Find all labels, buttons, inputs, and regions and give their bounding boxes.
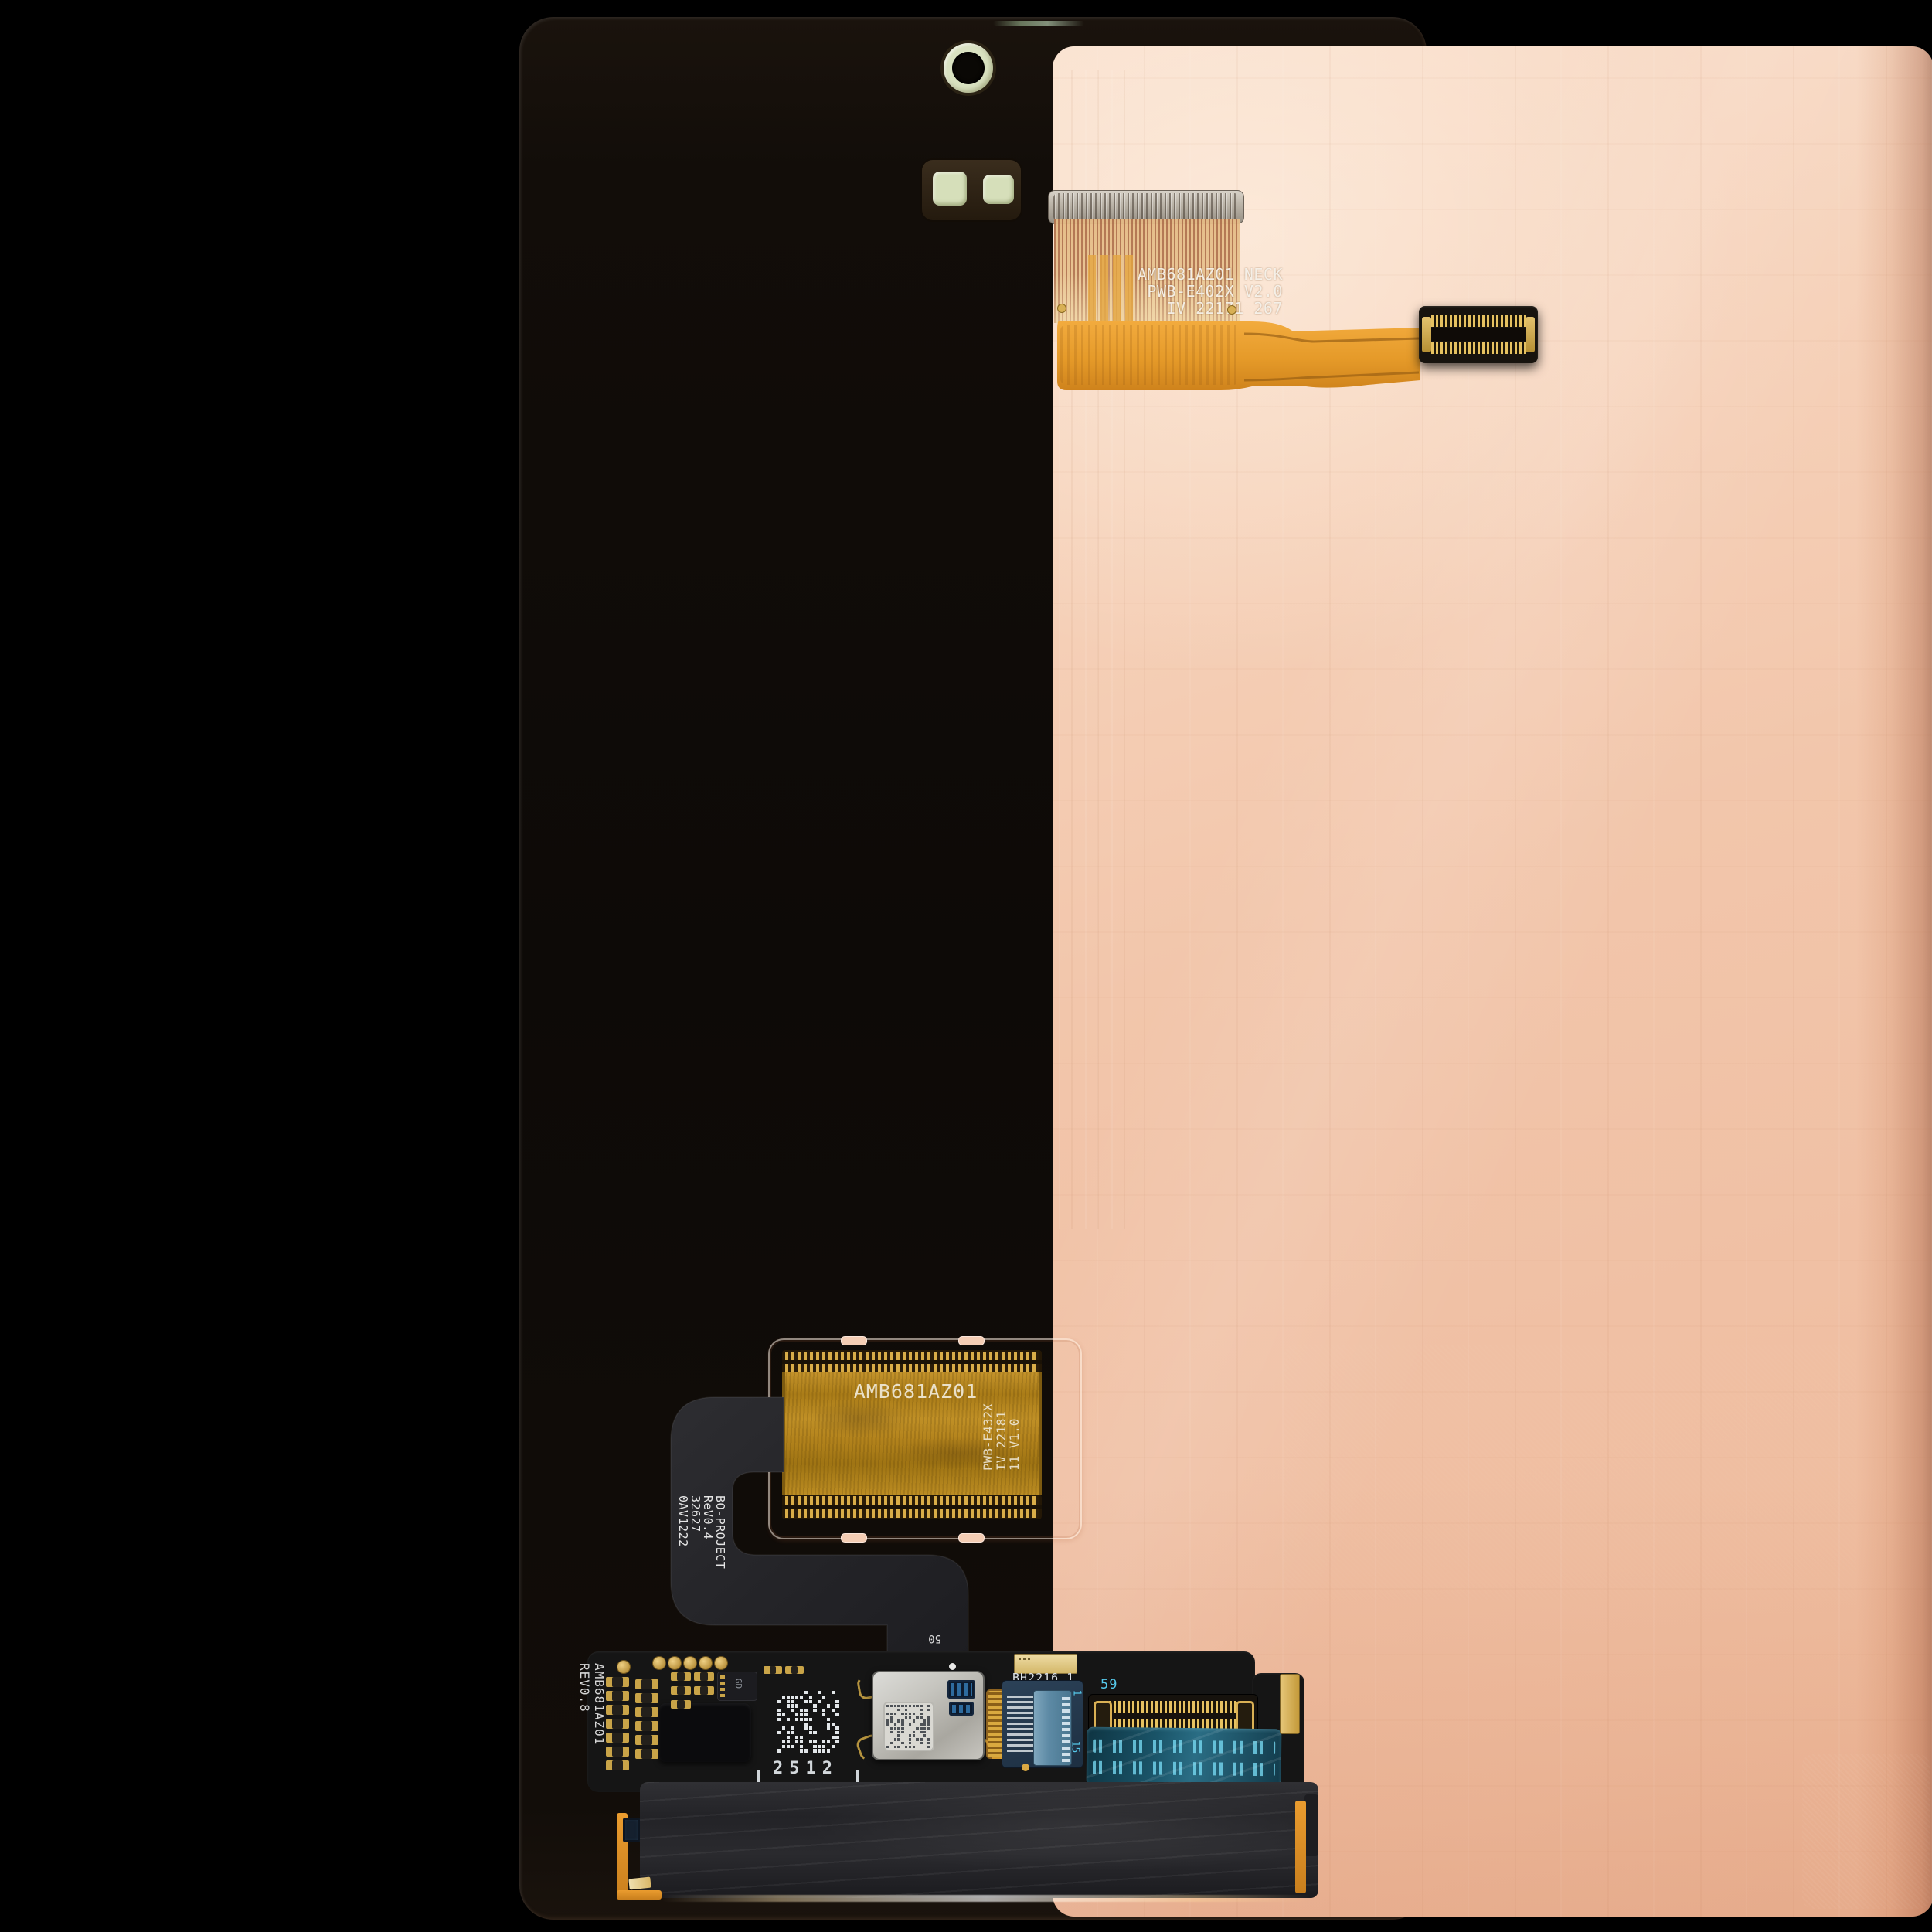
matrix-dot bbox=[909, 1738, 911, 1740]
matrix-dot bbox=[927, 1738, 930, 1740]
test-pad bbox=[714, 1656, 728, 1670]
matrix-dot bbox=[832, 1745, 835, 1748]
smd-component bbox=[671, 1686, 691, 1695]
matrix-dot bbox=[905, 1746, 907, 1748]
alignment-dot-right bbox=[1228, 306, 1236, 314]
chip-gd-marking: GD bbox=[733, 1679, 743, 1689]
matrix-dot bbox=[832, 1723, 835, 1726]
connector-pin-row bbox=[1431, 342, 1526, 354]
matrix-dot bbox=[795, 1704, 798, 1707]
matrix-dot bbox=[818, 1749, 821, 1752]
matrix-dot bbox=[897, 1727, 900, 1730]
smd-component bbox=[785, 1666, 804, 1674]
matrix-dot bbox=[890, 1705, 893, 1707]
matrix-dot bbox=[782, 1696, 785, 1699]
matrix-dot bbox=[897, 1734, 900, 1736]
matrix-dot bbox=[894, 1727, 896, 1730]
matrix-dot bbox=[894, 1723, 896, 1726]
matrix-dot bbox=[791, 1704, 794, 1707]
gold-locating-dot bbox=[1022, 1764, 1029, 1771]
matrix-dot bbox=[827, 1726, 830, 1730]
matrix-dot bbox=[920, 1731, 922, 1733]
pin-number-last: 15 bbox=[1069, 1741, 1080, 1753]
matrix-dot bbox=[791, 1709, 794, 1712]
matrix-dot bbox=[909, 1742, 911, 1744]
matrix-dot bbox=[804, 1691, 808, 1694]
matrix-dot bbox=[916, 1716, 918, 1718]
tape-right-step bbox=[1304, 1794, 1318, 1856]
smd-component bbox=[606, 1719, 629, 1729]
fpc-pin-comb bbox=[1007, 1695, 1033, 1752]
indent-tab bbox=[841, 1336, 867, 1345]
matrix-dot bbox=[916, 1738, 918, 1740]
matrix-dot bbox=[897, 1719, 900, 1722]
module-locating-dot bbox=[949, 1663, 956, 1670]
chip-gd: GD bbox=[717, 1672, 757, 1701]
main-flex-top-bond-row bbox=[782, 1350, 1042, 1373]
matrix-dot bbox=[835, 1704, 838, 1707]
matrix-dot bbox=[827, 1740, 830, 1743]
flex-edge-right-vertical bbox=[1295, 1801, 1306, 1893]
matrix-dot bbox=[791, 1700, 794, 1703]
matrix-dot bbox=[913, 1713, 915, 1715]
matrix-dot bbox=[782, 1745, 785, 1748]
smd-component bbox=[635, 1721, 658, 1731]
matrix-dot bbox=[787, 1745, 790, 1748]
pcb-date-code: 2512 bbox=[773, 1759, 858, 1778]
neck-flex-line1: AMB681AZ01 NECK bbox=[1110, 266, 1283, 283]
matrix-dot bbox=[890, 1716, 893, 1718]
frame-top-sliver bbox=[993, 21, 1084, 26]
copper-texture-patch bbox=[1802, 1754, 1930, 1909]
smd-component bbox=[606, 1677, 629, 1687]
matrix-dot bbox=[827, 1723, 830, 1726]
connector-pin-row bbox=[1109, 1701, 1237, 1713]
matrix-dot bbox=[800, 1749, 803, 1752]
connector-end-cap bbox=[1422, 317, 1431, 352]
matrix-dot bbox=[800, 1709, 803, 1712]
matrix-dot bbox=[901, 1723, 903, 1726]
matrix-dot bbox=[813, 1749, 816, 1752]
matrix-dot bbox=[920, 1727, 922, 1730]
matrix-dot bbox=[901, 1731, 903, 1733]
matrix-dot bbox=[909, 1746, 911, 1748]
matrix-dot bbox=[782, 1713, 785, 1716]
matrix-dot bbox=[913, 1705, 915, 1707]
matrix-dot bbox=[901, 1719, 903, 1722]
matrix-dot bbox=[901, 1713, 903, 1715]
matrix-dot bbox=[804, 1709, 808, 1712]
matrix-dot bbox=[886, 1705, 889, 1707]
matrix-dot bbox=[777, 1713, 781, 1716]
matrix-dot bbox=[777, 1718, 781, 1721]
pin-number-first: 1 bbox=[1070, 1690, 1082, 1696]
matrix-dot bbox=[927, 1719, 930, 1722]
module-blue-component bbox=[949, 1702, 974, 1716]
matrix-dot bbox=[804, 1723, 808, 1726]
matrix-dot bbox=[795, 1696, 798, 1699]
matrix-dot bbox=[890, 1742, 893, 1744]
matrix-dot bbox=[890, 1731, 893, 1733]
matrix-dot bbox=[913, 1731, 915, 1733]
gold-glint bbox=[628, 1877, 651, 1890]
matrix-dot bbox=[905, 1705, 907, 1707]
matrix-dot bbox=[809, 1718, 812, 1721]
pcb-datamatrix-code bbox=[776, 1689, 841, 1756]
matrix-dot bbox=[923, 1719, 926, 1722]
matrix-dot bbox=[916, 1727, 918, 1730]
matrix-dot bbox=[897, 1705, 900, 1707]
matrix-dot bbox=[927, 1705, 930, 1707]
matrix-dot bbox=[822, 1740, 825, 1743]
board-connector-top bbox=[1419, 306, 1538, 363]
matrix-dot bbox=[890, 1719, 893, 1722]
main-flex-side-marking: PWB-E432X IV 22181 11 V1.0 bbox=[981, 1384, 1023, 1471]
matrix-dot bbox=[791, 1726, 794, 1730]
matrix-dot bbox=[835, 1700, 838, 1703]
matrix-dot bbox=[909, 1713, 911, 1715]
matrix-dot bbox=[920, 1723, 922, 1726]
smd-component bbox=[635, 1707, 658, 1717]
camera-hole-ring bbox=[944, 43, 993, 93]
neck-flex-line2: PWB-E402X V2.0 bbox=[1110, 283, 1283, 300]
matrix-dot bbox=[800, 1745, 803, 1748]
matrix-dot bbox=[787, 1740, 790, 1743]
smd-component bbox=[764, 1666, 782, 1674]
matrix-dot bbox=[777, 1709, 781, 1712]
matrix-dot bbox=[787, 1704, 790, 1707]
pcb-edge-marking: AMB681AZ01 REV0.8 bbox=[593, 1663, 607, 1794]
fpc-finger-strip bbox=[988, 1691, 1003, 1757]
matrix-dot bbox=[913, 1734, 915, 1736]
matrix-dot bbox=[791, 1745, 794, 1748]
matrix-dot bbox=[795, 1736, 798, 1739]
matrix-dot bbox=[827, 1749, 830, 1752]
matrix-dot bbox=[835, 1731, 838, 1734]
matrix-dot bbox=[813, 1704, 816, 1707]
matrix-dot bbox=[800, 1718, 803, 1721]
matrix-dot bbox=[800, 1736, 803, 1739]
matrix-dot bbox=[905, 1716, 907, 1718]
matrix-dot bbox=[905, 1709, 907, 1711]
main-flex-side-line3: 11 V1.0 bbox=[1008, 1384, 1021, 1471]
smd-component bbox=[606, 1691, 629, 1701]
matrix-dot bbox=[894, 1713, 896, 1715]
ribbon-line3: 32627 bbox=[689, 1495, 702, 1573]
camera-hole bbox=[952, 52, 985, 84]
matrix-dot bbox=[800, 1696, 803, 1699]
matrix-dot bbox=[822, 1709, 825, 1712]
connector-cavity bbox=[1431, 328, 1526, 341]
smd-component bbox=[606, 1760, 629, 1770]
matrix-dot bbox=[920, 1742, 922, 1744]
matrix-dot bbox=[913, 1746, 915, 1748]
matrix-dot bbox=[795, 1740, 798, 1743]
driver-ic bbox=[658, 1703, 751, 1762]
panel-bottom-edge-glint bbox=[662, 1895, 1311, 1902]
matrix-dot bbox=[813, 1731, 816, 1734]
matrix-dot bbox=[927, 1742, 930, 1744]
matrix-dot bbox=[777, 1731, 781, 1734]
module-datamatrix-label bbox=[885, 1703, 933, 1750]
matrix-dot bbox=[818, 1700, 821, 1703]
matrix-dot bbox=[909, 1716, 911, 1718]
matrix-dot bbox=[835, 1726, 838, 1730]
matrix-dot bbox=[787, 1718, 790, 1721]
matrix-dot bbox=[787, 1736, 790, 1739]
smd-component bbox=[635, 1749, 658, 1759]
matrix-dot bbox=[827, 1704, 830, 1707]
ribbon-line1: BO-PROJECT bbox=[714, 1495, 726, 1573]
main-flex-side-line1: PWB-E432X bbox=[981, 1384, 995, 1471]
matrix-dot bbox=[916, 1705, 918, 1707]
matrix-dot bbox=[897, 1746, 900, 1748]
matrix-dot bbox=[923, 1723, 926, 1726]
teal-flex-trace-row bbox=[1093, 1761, 1275, 1776]
smd-component bbox=[635, 1735, 658, 1745]
bottom-shield-tape bbox=[640, 1782, 1318, 1898]
matrix-dot bbox=[822, 1713, 825, 1716]
matrix-dot bbox=[795, 1713, 798, 1716]
matrix-dot bbox=[809, 1696, 812, 1699]
smd-component bbox=[606, 1733, 629, 1743]
module-blue-component bbox=[947, 1680, 975, 1699]
main-flex-side-line2: IV 22181 bbox=[995, 1384, 1008, 1471]
smd-component bbox=[606, 1705, 629, 1715]
matrix-dot bbox=[897, 1709, 900, 1711]
copper-texture-patch-2 bbox=[1284, 1345, 1856, 1600]
matrix-dot bbox=[894, 1738, 896, 1740]
matrix-dot bbox=[920, 1709, 922, 1711]
sensor-aperture-right bbox=[983, 175, 1014, 204]
smd-component bbox=[606, 1747, 629, 1757]
matrix-dot bbox=[923, 1734, 926, 1736]
ribbon-marking: BO-PROJECT ReV0.4 32627 0AV1222 bbox=[677, 1495, 726, 1573]
matrix-dot bbox=[822, 1745, 825, 1748]
test-pad bbox=[699, 1656, 713, 1670]
matrix-dot bbox=[804, 1718, 808, 1721]
matrix-dot bbox=[920, 1705, 922, 1707]
matrix-dot bbox=[809, 1700, 812, 1703]
matrix-dot bbox=[901, 1705, 903, 1707]
matrix-dot bbox=[777, 1749, 781, 1752]
neck-flex-body-stripes bbox=[1060, 325, 1240, 385]
matrix-dot bbox=[890, 1713, 893, 1715]
smd-component bbox=[694, 1686, 714, 1695]
matrix-dot bbox=[890, 1727, 893, 1730]
matrix-dot bbox=[835, 1740, 838, 1743]
matrix-dot bbox=[913, 1719, 915, 1722]
matrix-dot bbox=[782, 1740, 785, 1743]
matrix-dot bbox=[787, 1731, 790, 1734]
matrix-dot bbox=[927, 1709, 930, 1711]
matrix-dot bbox=[923, 1727, 926, 1730]
test-pad bbox=[617, 1660, 631, 1674]
matrix-dot bbox=[901, 1742, 903, 1744]
indent-tab bbox=[958, 1336, 985, 1345]
smd-component bbox=[635, 1693, 658, 1703]
matrix-dot bbox=[813, 1709, 816, 1712]
test-pad bbox=[668, 1656, 682, 1670]
connector-end-cap bbox=[1526, 317, 1535, 352]
matrix-dot bbox=[832, 1709, 835, 1712]
matrix-dot bbox=[897, 1731, 900, 1733]
matrix-dot bbox=[920, 1738, 922, 1740]
ribbon-line2: ReV0.4 bbox=[702, 1495, 714, 1573]
matrix-dot bbox=[832, 1736, 835, 1739]
sensor-aperture-left bbox=[933, 172, 967, 206]
gold-edge-pad bbox=[1280, 1674, 1300, 1734]
teal-flex-trace-row bbox=[1093, 1740, 1275, 1754]
flex-edge-left-foot bbox=[617, 1890, 662, 1900]
matrix-dot bbox=[800, 1740, 803, 1743]
smd-component bbox=[671, 1700, 691, 1709]
matrix-dot bbox=[818, 1691, 821, 1694]
matrix-dot bbox=[800, 1713, 803, 1716]
matrix-dot bbox=[886, 1713, 889, 1715]
matrix-dot bbox=[905, 1713, 907, 1715]
matrix-dot bbox=[894, 1746, 896, 1748]
ribbon-ref-50: 50 bbox=[910, 1631, 941, 1645]
matrix-dot bbox=[920, 1716, 922, 1718]
matrix-dot bbox=[927, 1746, 930, 1748]
matrix-dot bbox=[927, 1727, 930, 1730]
matrix-dot bbox=[827, 1718, 830, 1721]
matrix-dot bbox=[927, 1716, 930, 1718]
matrix-dot bbox=[809, 1726, 812, 1730]
shielded-module bbox=[872, 1671, 985, 1760]
matrix-dot bbox=[791, 1731, 794, 1734]
matrix-dot bbox=[886, 1723, 889, 1726]
smd-component bbox=[694, 1672, 714, 1681]
matrix-dot bbox=[822, 1749, 825, 1752]
matrix-dot bbox=[909, 1705, 911, 1707]
matrix-dot bbox=[835, 1713, 838, 1716]
matrix-dot bbox=[927, 1723, 930, 1726]
matrix-dot bbox=[804, 1713, 808, 1716]
matrix-dot bbox=[901, 1727, 903, 1730]
matrix-dot bbox=[782, 1726, 785, 1730]
smd-component bbox=[671, 1672, 691, 1681]
matrix-dot bbox=[909, 1723, 911, 1726]
matrix-dot bbox=[804, 1700, 808, 1703]
matrix-dot bbox=[809, 1740, 812, 1743]
matrix-dot bbox=[894, 1705, 896, 1707]
matrix-dot bbox=[897, 1738, 900, 1740]
matrix-dot bbox=[920, 1713, 922, 1715]
connector-pin-row bbox=[1431, 315, 1526, 327]
matrix-dot bbox=[909, 1734, 911, 1736]
alignment-dot-left bbox=[1058, 304, 1066, 312]
matrix-dot bbox=[813, 1740, 816, 1743]
matrix-dot bbox=[832, 1691, 835, 1694]
matrix-dot bbox=[804, 1726, 808, 1730]
matrix-dot bbox=[818, 1745, 821, 1748]
flex-edge-component bbox=[623, 1818, 640, 1842]
photo-canvas: AMB681AZ01 PWB-E432X IV 22181 11 V1.0 AM… bbox=[0, 0, 1932, 1932]
sensor-window bbox=[922, 160, 1021, 220]
matrix-dot bbox=[822, 1696, 825, 1699]
fpc-socket-body bbox=[1033, 1690, 1072, 1766]
test-pad bbox=[683, 1656, 697, 1670]
matrix-dot bbox=[787, 1696, 790, 1699]
matrix-dot bbox=[886, 1719, 889, 1722]
matrix-dot bbox=[835, 1736, 838, 1739]
matrix-dot bbox=[813, 1745, 816, 1748]
pcb-ref-59: 59 bbox=[1100, 1677, 1117, 1692]
smd-component bbox=[635, 1679, 658, 1689]
matrix-dot bbox=[923, 1731, 926, 1733]
matrix-dot bbox=[804, 1749, 808, 1752]
matrix-dot bbox=[795, 1718, 798, 1721]
ribbon-line4: 0AV1222 bbox=[677, 1495, 689, 1573]
matrix-dot bbox=[809, 1731, 812, 1734]
test-pad bbox=[652, 1656, 666, 1670]
matrix-dot bbox=[886, 1746, 889, 1748]
matrix-dot bbox=[777, 1700, 781, 1703]
teal-flex-cable bbox=[1087, 1727, 1282, 1788]
fpc-socket-blue: 1 15 bbox=[1002, 1680, 1083, 1768]
matrix-dot bbox=[787, 1700, 790, 1703]
matrix-dot bbox=[791, 1696, 794, 1699]
